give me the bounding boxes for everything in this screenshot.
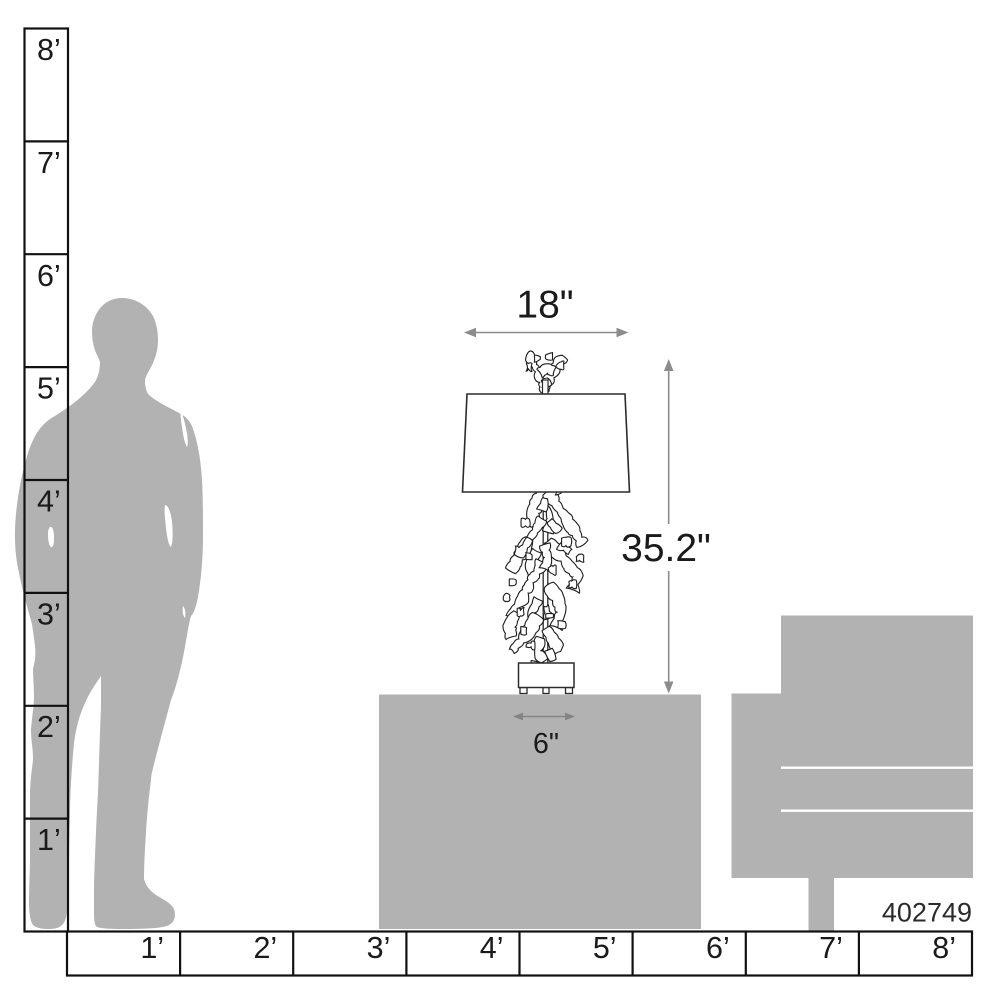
svg-text:7’: 7’ (37, 146, 61, 180)
svg-text:18": 18" (516, 284, 573, 327)
svg-text:3’: 3’ (367, 931, 391, 965)
svg-text:1’: 1’ (37, 823, 61, 857)
svg-text:6": 6" (533, 728, 559, 760)
svg-text:8’: 8’ (37, 33, 61, 67)
svg-text:6’: 6’ (706, 931, 730, 965)
svg-text:8’: 8’ (932, 931, 956, 965)
svg-text:4’: 4’ (37, 485, 61, 519)
svg-text:4’: 4’ (480, 931, 504, 965)
svg-text:5’: 5’ (37, 372, 61, 406)
svg-text:1’: 1’ (140, 931, 164, 965)
svg-text:5’: 5’ (593, 931, 617, 965)
svg-text:2’: 2’ (37, 710, 61, 744)
svg-text:7’: 7’ (819, 931, 843, 965)
svg-text:2’: 2’ (253, 931, 277, 965)
svg-text:402749: 402749 (882, 898, 972, 928)
svg-text:6’: 6’ (37, 259, 61, 293)
svg-text:3’: 3’ (37, 597, 61, 631)
svg-text:35.2": 35.2" (621, 527, 711, 570)
